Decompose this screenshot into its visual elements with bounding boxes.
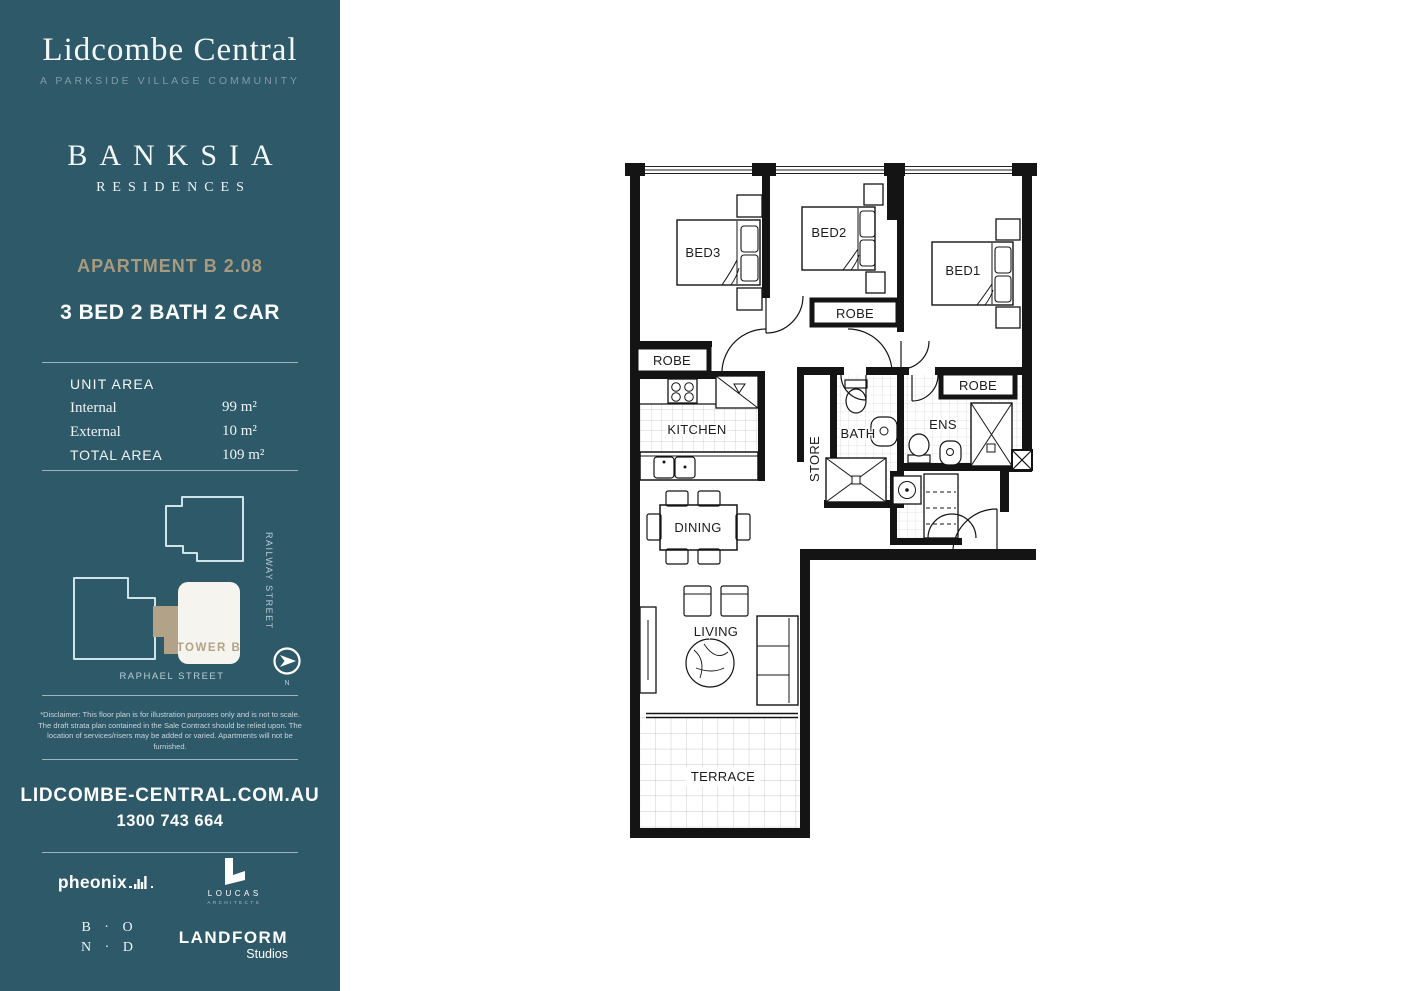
pheonix-dot-icon	[151, 886, 154, 889]
dining-label: DINING	[674, 520, 721, 535]
compass-n-label: N	[284, 680, 289, 687]
floor-plan: BED3 BED2 BED1 ROBE ROBE ROBE KITCHEN ST…	[580, 140, 1080, 860]
ens-label: ENS	[929, 417, 957, 432]
divider	[42, 470, 298, 471]
pheonix-wordmark: pheonix	[58, 875, 127, 889]
logo-loucas: LOUCAS ARCHITECTS	[196, 858, 270, 905]
tower-b-label: TOWER B	[177, 642, 242, 654]
terrace-label: TERRACE	[691, 769, 755, 784]
divider	[42, 695, 298, 696]
pheonix-bars-icon	[134, 874, 149, 889]
living-label: LIVING	[694, 624, 738, 639]
brand-title: Lidcombe Central	[0, 32, 340, 69]
robe-label: ROBE	[653, 353, 691, 368]
building-outline-left	[74, 578, 155, 659]
apartment-config: 3 BED 2 BATH 2 CAR	[0, 301, 340, 325]
building-outline-top	[166, 497, 243, 561]
loucas-l-icon	[221, 858, 245, 885]
disclaimer: *Disclaimer: This floor plan is for illu…	[38, 710, 302, 752]
living-furniture	[640, 586, 798, 705]
robe-label: ROBE	[836, 306, 874, 321]
compass-icon	[275, 649, 300, 674]
store-label: STORE	[807, 436, 822, 482]
kitchen-label: KITCHEN	[667, 422, 726, 437]
bed3-label: BED3	[685, 245, 720, 260]
apartment-label: APARTMENT B 2.08	[0, 256, 340, 277]
bed2-label: BED2	[811, 225, 846, 240]
bath-label: BATH	[841, 426, 876, 441]
raphael-street-label: RAPHAEL STREET	[119, 671, 224, 682]
residence-name: BANKSIA	[0, 139, 340, 173]
railway-street-label: RAILWAY STREET	[264, 532, 274, 630]
area-row-internal: Internal 99 m²	[70, 399, 300, 417]
loucas-subtitle: ARCHITECTS	[196, 900, 270, 905]
bed1-label: BED1	[945, 263, 980, 278]
website-url: LIDCOMBE-CENTRAL.COM.AU	[0, 785, 340, 807]
phone-number: 1300 743 664	[0, 812, 340, 831]
site-map: TOWER B RAILWAY STREET RAPHAEL STREET N	[0, 485, 340, 695]
landform-wordmark: LANDFORM	[168, 928, 288, 948]
logo-landform: LANDFORM Studios	[168, 928, 288, 961]
area-row-total: TOTAL AREA 109 m²	[70, 447, 300, 465]
area-row-label: External	[70, 424, 121, 440]
residence-subtitle: RESIDENCES	[0, 180, 340, 196]
divider	[42, 759, 298, 760]
divider	[42, 852, 298, 853]
landform-subtitle: Studios	[168, 947, 288, 961]
terrace-door	[646, 714, 798, 718]
area-row-value: 10 m²	[222, 423, 257, 440]
pheonix-dot-icon	[129, 886, 132, 889]
area-row-label: Internal	[70, 400, 117, 416]
logo-pheonix: pheonix	[50, 874, 162, 889]
brand-subtitle: A PARKSIDE VILLAGE COMMUNITY	[0, 75, 340, 87]
disclaimer-line: location of services/risers may be added…	[38, 731, 302, 752]
brochure-page: Lidcombe Central A PARKSIDE VILLAGE COMM…	[0, 0, 1403, 991]
area-row-value: 99 m²	[222, 399, 257, 416]
robe-label: ROBE	[959, 378, 997, 393]
area-row-label: TOTAL AREA	[70, 447, 163, 463]
bond-line: B · O	[72, 918, 142, 938]
logo-bond: B · O N · D	[72, 918, 142, 958]
unit-area-heading: UNIT AREA	[70, 376, 154, 392]
area-row-value: 109 m²	[222, 447, 264, 464]
disclaimer-line: The draft strata plan contained in the S…	[38, 721, 302, 732]
divider	[42, 362, 298, 363]
sidebar: Lidcombe Central A PARKSIDE VILLAGE COMM…	[0, 0, 340, 991]
loucas-wordmark: LOUCAS	[196, 889, 270, 898]
disclaimer-line: *Disclaimer: This floor plan is for illu…	[38, 710, 302, 721]
bond-line: N · D	[72, 938, 142, 958]
area-row-external: External 10 m²	[70, 423, 300, 441]
